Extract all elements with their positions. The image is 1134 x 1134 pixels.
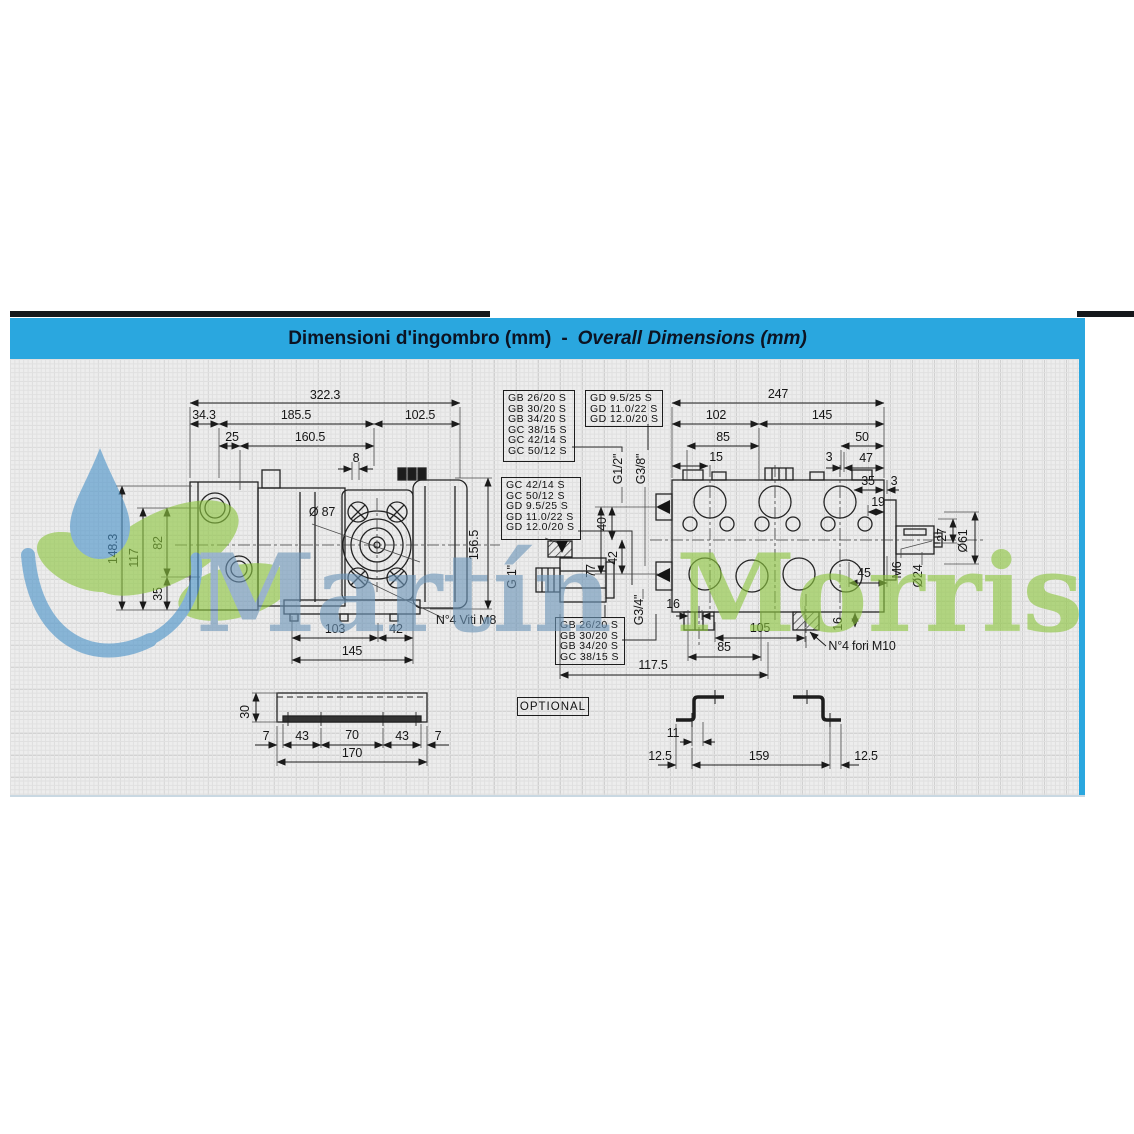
port-g1-2: G1/2" — [611, 454, 625, 485]
channel-drawing — [277, 693, 427, 726]
model-row: GC 42/14 S — [506, 480, 580, 491]
model-row: GB 26/20 S — [560, 620, 624, 631]
dim-170: 170 — [342, 746, 363, 760]
dim-102: 102 — [706, 408, 727, 422]
note-viti-m8: N°4 Viti M8 — [436, 613, 496, 627]
dim-o61: Ø61 — [956, 529, 970, 552]
model-table-mid-left: GC 42/14 S GC 50/12 S GD 9.5/25 S GD 11.… — [501, 477, 581, 540]
dim-43-right: 43 — [395, 729, 409, 743]
bracket-drawing — [676, 697, 841, 720]
dim-85-top: 85 — [716, 430, 730, 444]
optional-label: OPTIONAL — [520, 701, 586, 713]
dim-85-bottom: 85 — [717, 640, 731, 654]
dim-82: 82 — [151, 536, 165, 550]
dim-27: 27 — [935, 528, 949, 542]
dim-12-5-right: 12.5 — [854, 749, 878, 763]
dim-45: 45 — [857, 566, 871, 580]
dim-overall-247: 247 — [768, 387, 789, 401]
model-row: GD 9.5/25 S — [590, 393, 662, 404]
dim-117: 117 — [127, 548, 141, 568]
model-row: GD 12.0/20 S — [590, 414, 662, 425]
port-g1: G 1" — [505, 565, 519, 589]
dim-105: 105 — [750, 621, 771, 635]
model-row: GD 12.0/20 S — [506, 522, 580, 533]
dim-145-side: 145 — [342, 644, 363, 658]
dim-16-left: 16 — [666, 597, 680, 611]
dim-8: 8 — [353, 451, 360, 465]
dim-117-5: 117.5 — [638, 658, 668, 672]
dim-156-5: 156.5 — [467, 530, 481, 561]
dim-185-5: 185.5 — [281, 408, 312, 422]
port-g3-8: G3/8" — [634, 454, 648, 485]
dim-35-side: 35 — [151, 587, 165, 601]
dim-103: 103 — [325, 622, 346, 636]
model-table-top-left: GB 26/20 S GB 30/20 S GB 34/20 S GC 38/1… — [503, 390, 575, 462]
dim-7-left: 7 — [263, 729, 270, 743]
dim-42-side: 42 — [389, 622, 403, 636]
side-view-body — [190, 468, 467, 621]
dim-159: 159 — [749, 749, 770, 763]
model-row: GC 50/12 S — [508, 446, 574, 457]
dim-43-left: 43 — [295, 729, 309, 743]
model-table-top-right: GD 9.5/25 S GD 11.0/22 S GD 12.0/20 S — [585, 390, 663, 427]
optional-label-box: OPTIONAL — [517, 697, 589, 716]
port-g3-4: G3/4" — [632, 595, 646, 626]
dim-102-5: 102.5 — [405, 408, 436, 422]
dim-overall-322: 322.3 — [310, 388, 341, 402]
model-row: GB 34/20 S — [508, 414, 574, 425]
dim-3-right: 3 — [891, 474, 898, 488]
technical-drawing-svg: 322.3 34.3 185.5 102.5 25 160.5 8 148.3 … — [0, 0, 1134, 1134]
dim-50: 50 — [855, 430, 869, 444]
model-row: GB 34/20 S — [560, 641, 624, 652]
dim-o24: Ø24 — [911, 564, 925, 587]
dim-145-front: 145 — [812, 408, 833, 422]
dim-70: 70 — [345, 728, 359, 742]
model-table-bottom: GB 26/20 S GB 30/20 S GB 34/20 S GC 38/1… — [555, 617, 625, 665]
dim-30: 30 — [238, 705, 252, 719]
dim-25: 25 — [225, 430, 239, 444]
model-row: GB 26/20 S — [508, 393, 574, 404]
dim-16-right: 16 — [831, 617, 845, 631]
front-view-body — [656, 468, 942, 630]
dim-148-3: 148.3 — [106, 534, 120, 565]
model-row: GC 38/15 S — [560, 652, 624, 663]
dim-12-5-left: 12.5 — [648, 749, 672, 763]
dim-35-front: 35 — [861, 474, 875, 488]
dim-19: 19 — [871, 495, 885, 509]
page: Dimensioni d'ingombro (mm) - Overall Dim… — [0, 0, 1134, 1134]
model-row: GC 42/14 S — [508, 435, 574, 446]
dim-3-top: 3 — [826, 450, 833, 464]
dim-flange-diameter: Ø 87 — [309, 505, 336, 519]
model-row: GD 9.5/25 S — [506, 501, 580, 512]
dim-40: 40 — [595, 517, 609, 531]
dim-77: 77 — [584, 564, 598, 578]
note-fori-m10: N°4 fori M10 — [828, 639, 895, 653]
dim-160-5: 160.5 — [295, 430, 326, 444]
dim-47: 47 — [859, 451, 873, 465]
g1-fitting — [536, 541, 614, 602]
dim-42-front: 42 — [606, 551, 620, 565]
dim-15: 15 — [709, 450, 723, 464]
dim-m6: M6 — [890, 561, 904, 578]
dim-34-3: 34.3 — [192, 408, 216, 422]
dim-7-right: 7 — [435, 729, 442, 743]
dim-11: 11 — [667, 726, 680, 740]
